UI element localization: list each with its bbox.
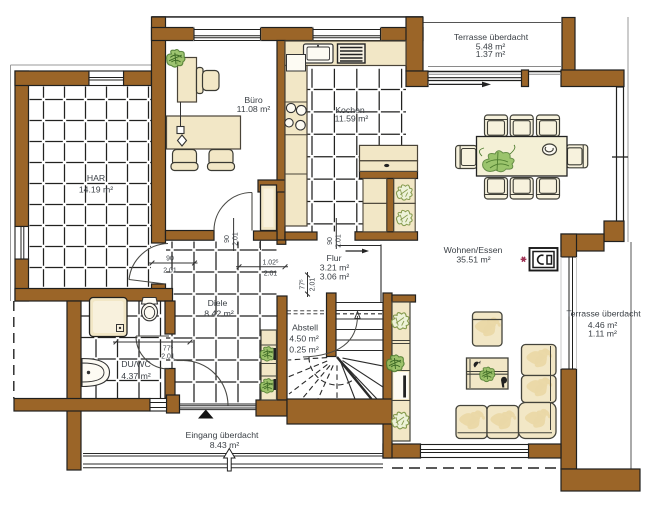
svg-text:Flur: Flur xyxy=(327,253,342,263)
svg-text:2.01: 2.01 xyxy=(264,271,278,278)
svg-text:4.37 m²: 4.37 m² xyxy=(121,371,151,381)
svg-text:14.19 m²: 14.19 m² xyxy=(79,185,113,195)
svg-text:90: 90 xyxy=(327,237,334,245)
svg-text:11.59 m²: 11.59 m² xyxy=(335,114,369,124)
svg-text:DU/WC: DU/WC xyxy=(121,359,150,369)
svg-text:35.51 m²: 35.51 m² xyxy=(456,255,490,265)
svg-text:2.01: 2.01 xyxy=(336,234,343,248)
svg-text:Abstell: Abstell xyxy=(292,323,318,333)
svg-text:Terrasse überdacht: Terrasse überdacht xyxy=(454,32,529,42)
svg-text:Wohnen/Essen: Wohnen/Essen xyxy=(444,245,503,255)
svg-text:11.08 m²: 11.08 m² xyxy=(237,104,271,114)
svg-text:Eingang überdacht: Eingang überdacht xyxy=(186,430,260,440)
svg-text:2.01: 2.01 xyxy=(163,268,177,275)
svg-text:Diele: Diele xyxy=(208,298,228,308)
svg-text:4.50 m²: 4.50 m² xyxy=(289,334,319,344)
svg-text:3.06 m²: 3.06 m² xyxy=(320,272,350,282)
svg-text:2.01: 2.01 xyxy=(233,232,240,246)
svg-text:1.11 m²: 1.11 m² xyxy=(588,329,617,339)
svg-text:8.42 m²: 8.42 m² xyxy=(204,309,234,319)
svg-text:2.01: 2.01 xyxy=(310,278,317,292)
svg-text:1.37 m²: 1.37 m² xyxy=(476,49,506,59)
svg-text:Terrasse überdacht: Terrasse überdacht xyxy=(566,309,641,319)
svg-text:90: 90 xyxy=(224,235,231,243)
svg-text:2.01: 2.01 xyxy=(161,354,175,361)
svg-text:90: 90 xyxy=(166,256,174,263)
svg-text:8.43 m²: 8.43 m² xyxy=(210,440,240,450)
svg-text:0.25 m²: 0.25 m² xyxy=(289,345,319,355)
svg-text:HAR: HAR xyxy=(87,173,105,183)
